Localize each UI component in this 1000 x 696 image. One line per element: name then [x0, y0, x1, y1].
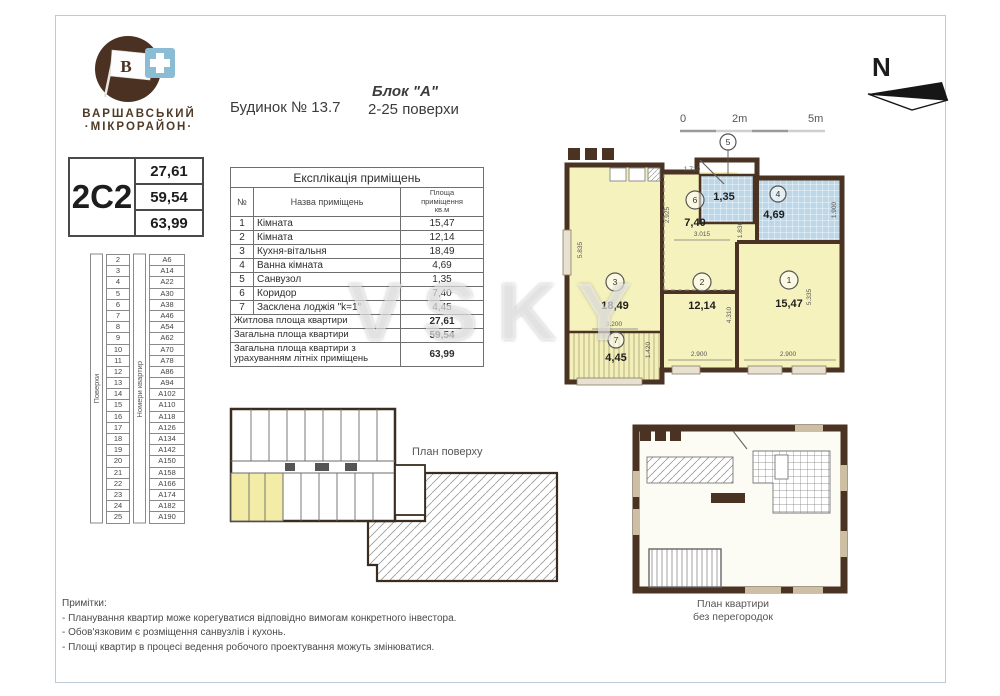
floor-cell: 19: [107, 445, 129, 456]
floor-cell: 7: [107, 311, 129, 322]
apartment-cell: А174: [150, 490, 184, 501]
room-2-number: 2: [700, 277, 705, 287]
room-6-area: 7,40: [684, 217, 705, 229]
table-cell: Кухня-вітальня: [254, 244, 401, 258]
table-row: 2Кімната12,14: [231, 230, 484, 244]
note-item: - Обов'язковим є розміщення санвузлів і …: [62, 626, 492, 641]
notes-title: Примітки:: [62, 597, 492, 612]
north-arrow-icon: N: [860, 46, 960, 116]
apartment-cell: А166: [150, 479, 184, 490]
loggia-zone: [649, 549, 721, 587]
floors-column: 2345678910111213141516171819202122232425: [106, 254, 130, 524]
dim-bath-right: 1.900: [831, 201, 838, 218]
dim-corridor-right: 1.836: [737, 221, 744, 238]
table-cell: 4,69: [401, 258, 484, 272]
apartment-cell: А182: [150, 501, 184, 512]
table-cell: 15,47: [401, 216, 484, 230]
apartment-cell: А6: [150, 255, 184, 266]
floor-plan: План поверху: [225, 403, 570, 595]
col-header-area: Площа приміщення кв.м: [401, 188, 484, 217]
hatch-strip: [647, 457, 733, 483]
apartment-cell: А142: [150, 445, 184, 456]
table-cell: 7: [231, 300, 254, 314]
scale-5m: 5m: [808, 113, 823, 125]
apartments-column-label: Номери квартир: [133, 254, 146, 524]
dim-left-height: 5.835: [577, 241, 584, 258]
table-row: 5Санвузол1,35: [231, 272, 484, 286]
explication-body: 1Кімната15,472Кімната12,143Кухня-вітальн…: [231, 216, 484, 314]
floor-cell: 23: [107, 490, 129, 501]
table-cell: Санвузол: [254, 272, 401, 286]
floor-cell: 3: [107, 266, 129, 277]
floor-cell: 14: [107, 389, 129, 400]
table-cell: 4,45: [401, 300, 484, 314]
summary-total-label: Загальна площа квартири: [231, 328, 401, 342]
unit-plan-label-2: без перегородок: [653, 611, 813, 624]
balcony-windows-icon: [640, 430, 681, 441]
dim-right-height: 5.335: [806, 288, 813, 305]
room-7-number: 7: [614, 335, 619, 345]
apartment-plan: 3 2 1 6 4 7 5 18,49 12,14 15,47 7,40 4,6…: [552, 130, 852, 398]
unit-plan-label: План квартири без перегородок: [653, 598, 813, 624]
apartment-cell: А102: [150, 389, 184, 400]
explication-title: Експлікація приміщень: [231, 168, 484, 188]
room-3-number: 3: [613, 277, 618, 287]
notes-block: Примітки: - Планування квартир може коре…: [62, 597, 492, 655]
floor-cell: 4: [107, 277, 129, 288]
floor-cell: 8: [107, 322, 129, 333]
col-header-num: №: [231, 188, 254, 217]
room-3-area: 18,49: [601, 300, 629, 312]
kitchen-units-icon: [610, 168, 660, 181]
table-row: 1Кімната15,47: [231, 216, 484, 230]
table-cell: 1,35: [401, 272, 484, 286]
room-2-area: 12,14: [688, 300, 716, 312]
dim-mid-vertical: 4.310: [726, 306, 733, 323]
floor-plan-sheet: В ВАРШАВСЬКИЙ ·МІКРОРАЙОН· Будинок № 13.…: [0, 0, 1000, 696]
dim-room1-width: 2.900: [780, 351, 797, 358]
room-4-number: 4: [776, 189, 781, 199]
room-4-area: 4,69: [763, 209, 784, 221]
table-cell: Кімната: [254, 216, 401, 230]
floor-cell: 13: [107, 378, 129, 389]
apartment-cell: А158: [150, 468, 184, 479]
table-row: 7Засклена лоджія "k=1"4,45: [231, 300, 484, 314]
table-cell: 12,14: [401, 230, 484, 244]
floor-cell: 16: [107, 412, 129, 423]
floor-cell: 2: [107, 255, 129, 266]
floor-cell: 17: [107, 423, 129, 434]
room-5-area: 1,35: [713, 191, 734, 203]
block-label: Блок "А": [372, 83, 438, 100]
apartment-cell: А62: [150, 333, 184, 344]
apartment-cell: А94: [150, 378, 184, 389]
apartment-cell: А86: [150, 367, 184, 378]
table-cell: 18,49: [401, 244, 484, 258]
apartment-cell: А110: [150, 400, 184, 411]
dim-loggia-right: 1.420: [645, 341, 652, 358]
unit-plan-label-1: План квартири: [653, 598, 813, 611]
highlighted-apartment: [231, 473, 283, 521]
brand-line-2: ·МІКРОРАЙОН·: [58, 121, 220, 134]
apartment-cell: А22: [150, 277, 184, 288]
room-5-number: 5: [726, 137, 731, 147]
table-row: 6Коридор7,40: [231, 286, 484, 300]
room-7-area: 4,45: [605, 352, 626, 364]
card-total-with-summer: 63,99: [136, 211, 202, 235]
apartment-cell: А46: [150, 311, 184, 322]
table-cell: Коридор: [254, 286, 401, 300]
floor-cell: 15: [107, 400, 129, 411]
scale-2m: 2m: [732, 113, 747, 125]
room-1-area: 15,47: [775, 298, 803, 310]
floor-cell: 18: [107, 434, 129, 445]
unit-outline-plan: [625, 413, 855, 601]
card-total-area: 59,54: [136, 185, 202, 211]
table-row: 4Ванна кімната4,69: [231, 258, 484, 272]
wall-stub: [711, 493, 745, 503]
note-item: - Планування квартир може корегуватися в…: [62, 612, 492, 627]
flag-letter: В: [120, 57, 131, 76]
apartment-cell: А190: [150, 512, 184, 522]
dim-corridor-top: 1.710: [684, 166, 701, 173]
table-cell: Ванна кімната: [254, 258, 401, 272]
table-cell: 4: [231, 258, 254, 272]
floors-column-label: Поверхи: [90, 254, 103, 524]
summary-total-value: 59,54: [401, 328, 484, 342]
dim-kitchen-width: 3.200: [606, 321, 623, 328]
dim-room2-width: 2.900: [691, 351, 708, 358]
room-6-number: 6: [693, 195, 698, 205]
table-cell: 3: [231, 244, 254, 258]
card-living-area: 27,61: [136, 159, 202, 185]
floor-cell: 25: [107, 512, 129, 522]
brand-name: ВАРШАВСЬКИЙ ·МІКРОРАЙОН·: [58, 108, 220, 133]
table-cell: 7,40: [401, 286, 484, 300]
floor-cell: 24: [107, 501, 129, 512]
floor-cell: 11: [107, 356, 129, 367]
apartment-cell: А126: [150, 423, 184, 434]
room-1-number: 1: [787, 275, 792, 285]
table-cell: 5: [231, 272, 254, 286]
table-row: 3Кухня-вітальня18,49: [231, 244, 484, 258]
floor-cell: 20: [107, 456, 129, 467]
floor-cell: 21: [107, 468, 129, 479]
floor-cell: 22: [107, 479, 129, 490]
apartment-cell: А38: [150, 300, 184, 311]
floor-cell: 6: [107, 300, 129, 311]
apartment-cell: А134: [150, 434, 184, 445]
floor-plan-label: План поверху: [412, 446, 483, 458]
apartment-cell: А30: [150, 289, 184, 300]
explication-table: Експлікація приміщень № Назва приміщень …: [230, 167, 484, 367]
apartment-cell: А70: [150, 345, 184, 356]
note-item: - Площі квартир в процесі ведення робочо…: [62, 641, 492, 656]
dim-corridor-left: 2.925: [664, 206, 671, 223]
building-number: Будинок № 13.7: [230, 99, 340, 116]
brand-logo: В: [88, 33, 198, 105]
balcony-windows-icon: [568, 148, 614, 160]
floors-range: 2-25 поверхи: [368, 101, 459, 118]
brand-line-1: ВАРШАВСЬКИЙ: [58, 108, 220, 121]
floor-cell: 5: [107, 289, 129, 300]
floor-cell: 9: [107, 333, 129, 344]
summary-with-summer-label: Загальна площа квартири з урахуванням лі…: [231, 342, 401, 366]
floor-cell: 12: [107, 367, 129, 378]
summary-living-label: Житлова площа квартири: [231, 314, 401, 328]
apartment-cell: А118: [150, 412, 184, 423]
dim-corridor-bottom: 3.015: [694, 231, 711, 238]
table-cell: 1: [231, 216, 254, 230]
table-cell: Засклена лоджія "k=1": [254, 300, 401, 314]
table-cell: 6: [231, 286, 254, 300]
apartment-cell: А54: [150, 322, 184, 333]
apartment-cell: А14: [150, 266, 184, 277]
summary-living-value: 27,61: [401, 314, 484, 328]
apartments-column: А6А14А22А30А38А46А54А62А70А78А86А94А102А…: [149, 254, 185, 524]
apartment-type-code: 2С2: [70, 159, 136, 235]
apartment-cell: А150: [150, 456, 184, 467]
floor-cell: 10: [107, 345, 129, 356]
notes-list: - Планування квартир може корегуватися в…: [62, 612, 492, 656]
apartment-cell: А78: [150, 356, 184, 367]
north-letter: N: [872, 52, 891, 82]
floors-apartments-table: Поверхи 23456789101112131415161718192021…: [90, 254, 185, 524]
table-cell: 2: [231, 230, 254, 244]
scale-0: 0: [680, 113, 686, 125]
apartment-type-card: 2С2 27,61 59,54 63,99: [68, 157, 204, 237]
summary-with-summer-value: 63,99: [401, 342, 484, 366]
table-cell: Кімната: [254, 230, 401, 244]
col-header-name: Назва приміщень: [254, 188, 401, 217]
col-header-area-3: кв.м: [404, 206, 480, 215]
